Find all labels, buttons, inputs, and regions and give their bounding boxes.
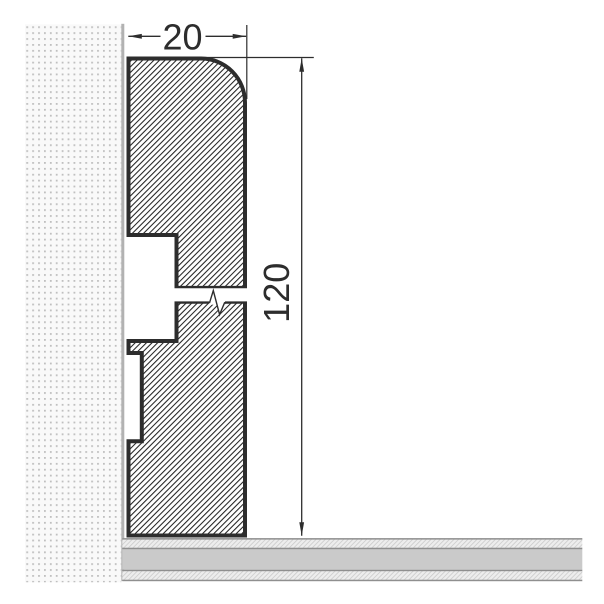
svg-text:20: 20 (162, 16, 202, 57)
svg-text:120: 120 (256, 263, 297, 323)
